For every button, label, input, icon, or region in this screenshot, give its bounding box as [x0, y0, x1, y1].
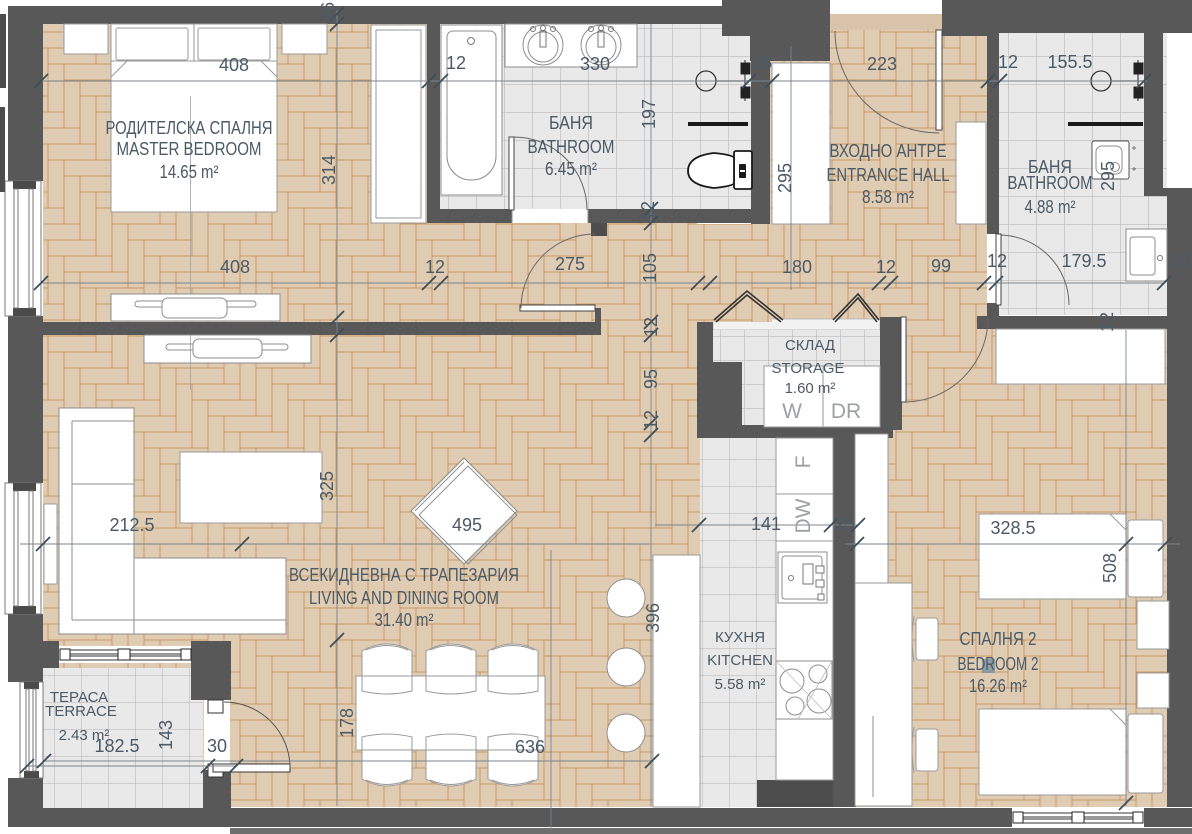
svg-text:508: 508	[1100, 553, 1120, 583]
svg-text:ВХОДНО АНТРЕ: ВХОДНО АНТРЕ	[830, 141, 947, 161]
svg-text:408: 408	[220, 257, 250, 277]
svg-text:12: 12	[987, 251, 1007, 271]
svg-text:DR: DR	[831, 400, 861, 423]
svg-text:178: 178	[337, 708, 357, 738]
svg-text:12: 12	[998, 52, 1018, 72]
svg-text:LIVING AND DINING ROOM: LIVING AND DINING ROOM	[309, 588, 499, 608]
svg-text:F: F	[792, 456, 815, 469]
svg-text:12: 12	[446, 53, 466, 73]
svg-text:БАНЯ: БАНЯ	[549, 113, 593, 133]
svg-text:325: 325	[317, 471, 337, 501]
svg-text:12: 12	[425, 257, 445, 277]
svg-text:99: 99	[931, 256, 951, 276]
svg-text:396: 396	[643, 603, 663, 633]
svg-text:25: 25	[835, 514, 855, 534]
svg-text:31.40 m²: 31.40 m²	[375, 610, 434, 630]
svg-text:4.88 m²: 4.88 m²	[1025, 197, 1076, 217]
svg-text:179.5: 179.5	[1061, 251, 1106, 271]
svg-text:330: 330	[580, 54, 610, 74]
svg-text:СКЛАД: СКЛАД	[785, 337, 835, 354]
svg-text:12: 12	[638, 201, 658, 221]
svg-text:КУХНЯ: КУХНЯ	[715, 629, 765, 646]
svg-text:95: 95	[641, 369, 661, 389]
svg-text:РОДИТЕЛСКА СПАЛНЯ: РОДИТЕЛСКА СПАЛНЯ	[106, 118, 273, 138]
svg-text:25: 25	[752, 53, 772, 73]
svg-text:295: 295	[1098, 161, 1118, 191]
svg-text:328.5: 328.5	[990, 518, 1035, 538]
svg-text:5.58 m²: 5.58 m²	[715, 676, 766, 693]
svg-text:408: 408	[219, 55, 249, 75]
svg-text:16.26 m²: 16.26 m²	[969, 676, 1027, 696]
svg-text:223: 223	[867, 54, 897, 74]
svg-text:295: 295	[775, 163, 795, 193]
svg-text:12: 12	[876, 257, 896, 277]
svg-text:197: 197	[639, 99, 659, 129]
svg-text:143: 143	[156, 720, 176, 750]
svg-text:MASTER BEDROOM: MASTER BEDROOM	[117, 139, 262, 159]
svg-text:26: 26	[1170, 251, 1190, 271]
svg-text:14.65 m²: 14.65 m²	[160, 162, 219, 182]
svg-text:BATHROOM: BATHROOM	[528, 137, 615, 157]
svg-text:26: 26	[318, 2, 338, 22]
svg-text:6.45 m²: 6.45 m²	[545, 159, 597, 179]
svg-text:275: 275	[555, 254, 585, 274]
svg-text:W: W	[782, 400, 802, 423]
svg-text:KITCHEN: KITCHEN	[707, 652, 773, 669]
svg-text:ВСЕКИДНЕВНА С ТРАПЕЗАРИЯ: ВСЕКИДНЕВНА С ТРАПЕЗАРИЯ	[289, 565, 519, 585]
svg-text:12: 12	[1097, 312, 1117, 332]
svg-text:2.43 m²: 2.43 m²	[59, 727, 110, 744]
svg-text:141: 141	[751, 514, 781, 534]
svg-text:STORAGE: STORAGE	[771, 360, 844, 377]
svg-text:314: 314	[319, 155, 339, 185]
svg-text:30: 30	[207, 736, 227, 756]
svg-text:636: 636	[515, 737, 545, 757]
svg-text:TERRACE: TERRACE	[45, 703, 117, 720]
svg-text:180: 180	[782, 257, 812, 277]
svg-text:155.5: 155.5	[1047, 52, 1092, 72]
svg-text:212.5: 212.5	[109, 515, 154, 535]
svg-text:DW: DW	[792, 498, 815, 533]
svg-text:8.58 m²: 8.58 m²	[862, 187, 914, 207]
svg-text:12: 12	[641, 317, 661, 337]
svg-text:BATHROOM: BATHROOM	[1008, 173, 1093, 193]
svg-text:ENTRANCE HALL: ENTRANCE HALL	[827, 165, 950, 185]
svg-text:BEDROOM 2: BEDROOM 2	[958, 654, 1039, 674]
svg-text:495: 495	[452, 515, 482, 535]
svg-text:СПАЛНЯ 2: СПАЛНЯ 2	[960, 629, 1037, 649]
svg-text:12: 12	[641, 410, 661, 430]
svg-text:105: 105	[640, 253, 660, 283]
svg-text:1.60 m²: 1.60 m²	[785, 380, 836, 397]
